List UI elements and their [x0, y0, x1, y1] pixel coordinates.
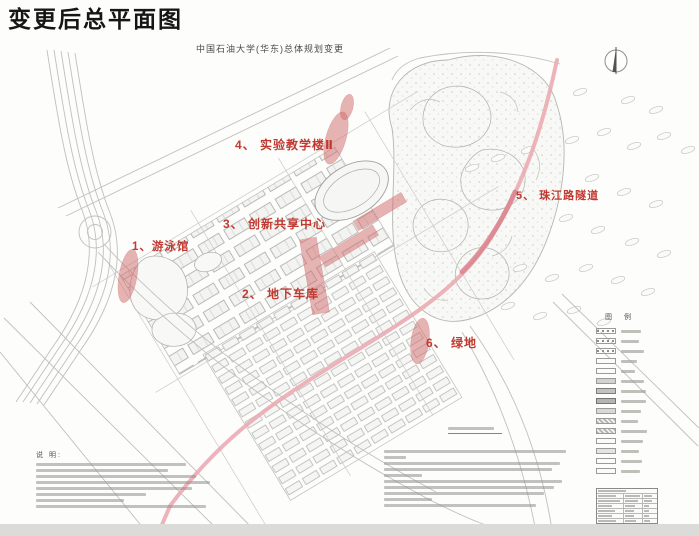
page-bottom-edge — [0, 524, 699, 536]
highway-bundle — [16, 50, 117, 405]
table-row — [597, 498, 657, 503]
legend-item — [596, 456, 696, 466]
legend-item — [596, 436, 696, 446]
notes-line — [36, 481, 210, 484]
plan-sheet: 变更后总平面图 中国石油大学(华东)总体规划变更 1、游泳馆 2、 地下车库 3… — [0, 0, 699, 536]
notes-line — [36, 493, 146, 496]
notes-line — [36, 505, 206, 508]
annotation-innovation-center: 3、 创新共享中心 — [223, 215, 326, 232]
notes-line — [36, 463, 186, 466]
annotation-swimming-pool: 1、游泳馆 — [132, 238, 189, 254]
notes-line — [384, 450, 566, 453]
annotation-underground-garage: 2、 地下车库 — [242, 285, 319, 302]
legend-item — [596, 376, 696, 386]
notes-line — [384, 504, 536, 507]
notes-line — [384, 492, 544, 495]
notes-line — [36, 487, 192, 490]
annotation-lab-building: 4、 实验教学楼Ⅱ — [235, 136, 334, 153]
legend-item — [596, 346, 696, 356]
notes-line — [384, 480, 562, 483]
table-row — [597, 513, 657, 518]
legend: 图 例 — [596, 312, 696, 476]
legend-rows — [596, 326, 696, 476]
table-row — [597, 508, 657, 513]
notes-line — [384, 468, 552, 471]
table-row — [597, 503, 657, 508]
notes-line — [384, 456, 406, 459]
indicator-table — [596, 488, 658, 524]
legend-item — [596, 406, 696, 416]
annotation-green-space: 6、 绿地 — [426, 334, 477, 351]
table-row — [597, 489, 657, 493]
notes-line — [36, 499, 124, 502]
notes-block-right — [384, 450, 579, 510]
notes-line — [384, 462, 560, 465]
scale-note — [448, 427, 502, 434]
legend-item — [596, 366, 696, 376]
page-title: 变更后总平面图 — [8, 0, 183, 34]
legend-item — [596, 416, 696, 426]
legend-item — [596, 386, 696, 396]
legend-item — [596, 466, 696, 476]
legend-item — [596, 326, 696, 336]
notes-line — [384, 474, 422, 477]
legend-item — [596, 446, 696, 456]
page-subtitle: 中国石油大学(华东)总体规划变更 — [196, 42, 344, 55]
legend-item — [596, 336, 696, 346]
notes-line — [36, 475, 196, 478]
legend-item — [596, 396, 696, 406]
legend-title: 图 例 — [605, 312, 696, 322]
notes-line — [384, 486, 554, 489]
notes-line — [36, 469, 168, 472]
notes-block: 说 明: — [36, 450, 236, 511]
scale-note-text — [448, 427, 494, 430]
notes-title: 说 明: — [36, 450, 236, 460]
annotation-zhujiang-tunnel: 5、 珠江路隧道 — [516, 187, 599, 203]
table-row — [597, 518, 657, 523]
notes-line — [384, 498, 432, 501]
table-row — [597, 493, 657, 498]
legend-item — [596, 426, 696, 436]
highlight-lab-building — [319, 93, 356, 167]
legend-item — [596, 356, 696, 366]
north-arrow-icon — [601, 42, 631, 78]
